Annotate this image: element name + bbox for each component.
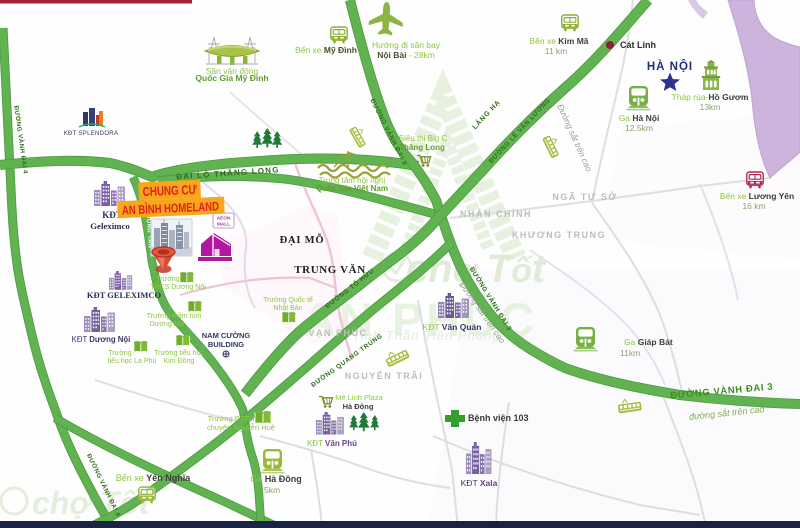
svg-text:KĐT Văn Phú: KĐT Văn Phú: [307, 439, 357, 448]
svg-text:Hà Đông: Hà Đông: [343, 402, 374, 411]
svg-text:Trường PTTH: Trường PTTH: [208, 414, 255, 423]
svg-text:5km: 5km: [264, 485, 280, 495]
svg-text:Nội Bài - 28km: Nội Bài - 28km: [377, 50, 435, 60]
svg-text:Trường tiểu học: Trường tiểu học: [154, 349, 204, 357]
svg-text:Bến xe Lương Yên: Bến xe Lương Yên: [720, 191, 794, 201]
svg-text:KĐT Xala: KĐT Xala: [461, 478, 498, 488]
svg-text:Ga Hà Đông: Ga Hà Đông: [250, 474, 302, 484]
svg-text:tiểu học La Phù: tiểu học La Phù: [108, 357, 157, 365]
svg-text:chuyên Nguyễn Huệ: chuyên Nguyễn Huệ: [207, 423, 275, 432]
svg-text:Ga Giáp Bát: Ga Giáp Bát: [624, 337, 673, 347]
svg-text:Thăng Long: Thăng Long: [399, 143, 445, 152]
svg-text:16 km: 16 km: [742, 201, 765, 211]
svg-text:Tháp rùa-Hồ Gươm: Tháp rùa-Hồ Gươm: [672, 92, 749, 102]
svg-text:VẠN PHÚC: VẠN PHÚC: [308, 327, 367, 338]
svg-text:13km: 13km: [700, 102, 721, 112]
svg-text:KĐT GELEXIMCO: KĐT GELEXIMCO: [87, 290, 162, 300]
svg-text:Kim Đồng: Kim Đồng: [164, 356, 195, 365]
svg-text:Siêu thị Big C: Siêu thị Big C: [399, 134, 448, 143]
svg-text:KĐT Văn Quán: KĐT Văn Quán: [423, 322, 482, 332]
svg-text:Bệnh viện 103: Bệnh viện 103: [468, 413, 529, 423]
svg-text:TRUNG VĂN: TRUNG VĂN: [294, 264, 366, 276]
svg-text:Cát Linh: Cát Linh: [620, 40, 656, 50]
svg-text:Trường: Trường: [156, 276, 180, 283]
svg-text:Trường: Trường: [108, 350, 132, 357]
svg-text:12.5km: 12.5km: [625, 123, 653, 133]
svg-text:Bến xe Yên Nghĩa: Bến xe Yên Nghĩa: [116, 473, 192, 483]
svg-text:11km: 11km: [620, 348, 640, 358]
svg-text:CHUNG CƯ: CHUNG CƯ: [142, 182, 197, 199]
svg-text:Trường Quốc tế: Trường Quốc tế: [263, 295, 313, 304]
svg-text:ĐẠI MỖ: ĐẠI MỖ: [280, 233, 325, 246]
svg-text:Ga Hà Nội: Ga Hà Nội: [619, 113, 660, 123]
svg-text:MALL: MALL: [217, 222, 230, 228]
svg-text:Hướng đi sân bay: Hướng đi sân bay: [372, 40, 441, 50]
svg-text:THCS Dương Nội: THCS Dương Nội: [150, 284, 206, 291]
svg-text:NGUYỄN TRÃI: NGUYỄN TRÃI: [345, 370, 424, 381]
svg-text:NGÃ TƯ SỞ: NGÃ TƯ SỞ: [552, 191, 617, 202]
svg-text:HÀ NỘI: HÀ NỘI: [647, 60, 693, 73]
svg-text:Dương Nội: Dương Nội: [150, 321, 185, 328]
svg-text:NHÂN CHÍNH: NHÂN CHÍNH: [460, 208, 532, 219]
svg-text:Quốc Gia Mỹ Đình: Quốc Gia Mỹ Đình: [195, 73, 268, 83]
svg-text:Trường mầm non: Trường mầm non: [147, 311, 202, 320]
svg-text:KHƯƠNG TRUNG: KHƯƠNG TRUNG: [512, 230, 606, 240]
svg-text:KĐT SPLENDORA: KĐT SPLENDORA: [64, 131, 118, 137]
svg-text:Mê Linh Plaza: Mê Linh Plaza: [335, 393, 383, 402]
svg-text:KĐT Dương Nội: KĐT Dương Nội: [72, 335, 131, 344]
svg-text:Nhật Bản: Nhật Bản: [273, 305, 302, 312]
svg-text:Geleximco: Geleximco: [90, 221, 130, 231]
svg-text:Quốc Gia Việt Nam: Quốc Gia Việt Nam: [316, 184, 388, 193]
svg-text:Bến xe Mỹ Đình: Bến xe Mỹ Đình: [295, 45, 357, 55]
svg-text:NAM CƯỜNG: NAM CƯỜNG: [202, 331, 251, 340]
svg-text:11 km: 11 km: [545, 46, 568, 56]
svg-text:BUILDING: BUILDING: [208, 340, 244, 349]
svg-text:Bến xe Kim Mã: Bến xe Kim Mã: [529, 36, 588, 46]
svg-text:AEON: AEON: [217, 216, 231, 222]
